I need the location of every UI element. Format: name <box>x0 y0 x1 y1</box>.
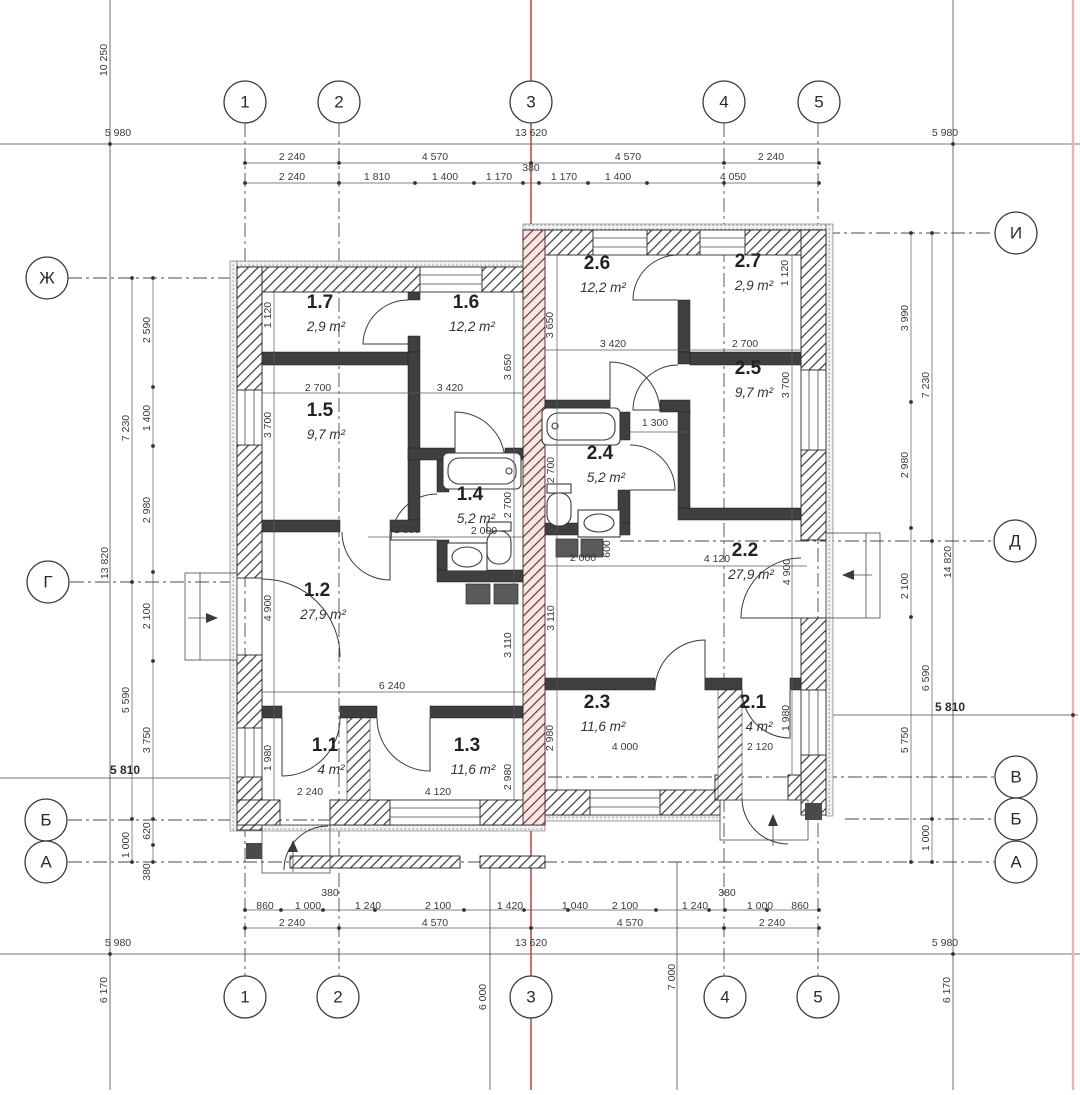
window-icon <box>390 800 480 825</box>
room-number: 1.5 <box>307 400 334 421</box>
dimension-label: 4 900 <box>781 559 793 585</box>
dimension-tick <box>472 181 476 185</box>
window-icon <box>237 728 262 777</box>
axis-bubble-label: 2 <box>334 92 343 111</box>
dimension-label: 2 100 <box>612 900 638 912</box>
dimension-label: 6 170 <box>98 977 110 1003</box>
dimension-tick <box>151 817 155 821</box>
room-number: 2.7 <box>735 251 761 272</box>
axis-bubble-label: Б <box>1010 809 1021 828</box>
dimension-label: 1 300 <box>394 524 420 536</box>
dimension-label: 1 000 <box>120 832 132 858</box>
dimension-tick <box>722 926 726 930</box>
dimension-tick <box>930 860 934 864</box>
dimension-label: 380 <box>522 162 540 174</box>
window-icon <box>801 370 826 450</box>
dimension-label: 5 980 <box>105 127 131 139</box>
sink-icon <box>447 543 487 571</box>
dimension-tick <box>930 231 934 235</box>
dimension-label: 3 650 <box>502 354 514 380</box>
room-number: 2.2 <box>732 540 758 561</box>
party-wall <box>523 230 545 825</box>
dimension-tick <box>817 908 821 912</box>
axis-bubble-label: Ж <box>39 268 55 287</box>
dimension-label: 2 980 <box>544 725 556 751</box>
dimension-label: 7 000 <box>666 964 678 990</box>
dimension-label: 6 240 <box>379 680 405 692</box>
axis-bubble: 2 <box>317 976 359 1018</box>
dimension-label: 5 980 <box>932 127 958 139</box>
axis-bubble: 5 <box>797 976 839 1018</box>
dimension-label: 2 240 <box>279 171 305 183</box>
room-area: 2,9 m² <box>306 319 346 334</box>
dimension-label: 3 420 <box>437 382 463 394</box>
dimension-tick <box>151 659 155 663</box>
dimension-tick <box>413 181 417 185</box>
axis-bubble-label: 1 <box>240 987 249 1006</box>
dimension-label: 7 230 <box>920 372 932 398</box>
dimension-tick <box>909 231 913 235</box>
room-area: 4 m² <box>746 719 774 734</box>
axis-bubble-label: А <box>1010 852 1022 871</box>
dimension-tick <box>723 908 727 912</box>
dimension-label: 1 400 <box>432 171 458 183</box>
dimension-label: 14 820 <box>942 546 954 578</box>
dimension-tick <box>130 860 134 864</box>
dimension-tick <box>951 142 955 146</box>
dimension-label: 5 810 <box>935 700 965 714</box>
dimension-label: 4 120 <box>704 553 730 565</box>
axis-bubble: 5 <box>798 81 840 123</box>
dimension-tick <box>909 400 913 404</box>
dimension-tick <box>909 615 913 619</box>
window-icon <box>237 390 262 445</box>
dimension-label: 4 900 <box>262 595 274 621</box>
dimension-label: 13 620 <box>515 127 547 139</box>
dimension-label: 1 120 <box>262 302 274 328</box>
dimension-label: 5 590 <box>120 687 132 713</box>
dimension-tick <box>151 276 155 280</box>
dimension-label: 3 110 <box>502 632 514 658</box>
dimension-tick <box>951 952 955 956</box>
dimension-label: 4 570 <box>422 151 448 163</box>
axis-bubble: Г <box>27 561 69 603</box>
room-area: 11,6 m² <box>451 762 496 777</box>
axis-bubble: 3 <box>510 81 552 123</box>
dimension-label: 2 000 <box>471 525 497 537</box>
dimension-label: 860 <box>256 900 274 912</box>
dimension-label: 3 750 <box>141 727 153 753</box>
dimension-tick <box>321 908 325 912</box>
room-number: 1.4 <box>457 484 484 505</box>
dimension-label: 2 120 <box>747 741 773 753</box>
axis-bubble: 3 <box>510 976 552 1018</box>
axis-bubble: И <box>995 212 1037 254</box>
dimension-tick <box>151 385 155 389</box>
axis-bubble-label: 2 <box>333 987 342 1006</box>
room-area: 5,2 m² <box>587 470 626 485</box>
dimension-label: 7 230 <box>120 415 132 441</box>
dimension-tick <box>151 570 155 574</box>
dimension-label: 5 810 <box>110 763 140 777</box>
dimension-tick <box>586 181 590 185</box>
toilet-icon <box>547 484 571 526</box>
axis-bubble-label: Г <box>43 572 52 591</box>
dimension-tick <box>337 161 341 165</box>
axis-bubble: Ж <box>26 257 68 299</box>
dimension-tick <box>537 181 541 185</box>
dimension-label: 13 820 <box>99 547 111 579</box>
room-number: 1.7 <box>307 292 333 313</box>
dimension-label: 2 980 <box>502 764 514 790</box>
dimension-label: 2 240 <box>279 917 305 929</box>
dimension-label: 1 980 <box>262 745 274 771</box>
dimension-label: 1 300 <box>642 417 668 429</box>
porch-pier <box>805 803 822 820</box>
dimension-label: 1 000 <box>747 900 773 912</box>
axis-bubble-label: Д <box>1009 531 1021 550</box>
dimension-label: 380 <box>718 887 736 899</box>
dimension-label: 4 570 <box>617 917 643 929</box>
dimension-label: 600 <box>601 540 613 558</box>
room-number: 1.1 <box>312 735 339 756</box>
dimension-label: 6 170 <box>941 977 953 1003</box>
dimension-label: 2 980 <box>141 497 153 523</box>
room-number: 1.3 <box>454 735 480 756</box>
dimension-tick <box>243 908 247 912</box>
dimension-tick <box>108 952 112 956</box>
axis-bubble: А <box>995 841 1037 883</box>
dimension-label: 2 240 <box>297 786 323 798</box>
dimension-label: 3 650 <box>544 312 556 338</box>
room-number: 2.6 <box>584 253 610 274</box>
dimension-label: 2 000 <box>570 552 596 564</box>
room-area: 4 m² <box>318 762 346 777</box>
room-number: 2.4 <box>587 443 614 464</box>
room-area: 27,9 m² <box>727 567 774 582</box>
dimension-label: 1 240 <box>682 900 708 912</box>
dimension-label: 2 700 <box>545 457 557 483</box>
room-area: 9,7 m² <box>735 385 774 400</box>
dimension-label: 10 250 <box>98 44 110 76</box>
dimension-label: 860 <box>791 900 809 912</box>
axis-bubble: 1 <box>224 976 266 1018</box>
room-number: 2.3 <box>584 692 610 713</box>
dimension-tick <box>645 181 649 185</box>
dimension-label: 1 000 <box>295 900 321 912</box>
entry-arrow-icon <box>842 570 872 580</box>
dimension-label: 1 040 <box>562 900 588 912</box>
axis-bubble-label: 4 <box>720 987 729 1006</box>
dimension-label: 2 700 <box>502 492 514 518</box>
dimension-label: 2 100 <box>141 603 153 629</box>
dimension-label: 2 700 <box>305 382 331 394</box>
dimension-label: 620 <box>141 822 153 840</box>
dimension-label: 1 120 <box>779 260 791 286</box>
dimension-label: 1 400 <box>605 171 631 183</box>
dimension-label: 3 700 <box>262 412 274 438</box>
dimension-label: 4 570 <box>422 917 448 929</box>
room-area: 2,9 m² <box>734 278 774 293</box>
dimension-tick <box>130 276 134 280</box>
window-icon <box>593 230 647 255</box>
room-number: 2.1 <box>740 692 767 713</box>
axis-bubble: 4 <box>703 81 745 123</box>
dimension-label: 3 700 <box>780 372 792 398</box>
dimension-tick <box>151 444 155 448</box>
dimension-label: 2 700 <box>732 338 758 350</box>
dimension-label: 1 420 <box>497 900 523 912</box>
dimension-tick <box>521 181 525 185</box>
window-icon <box>590 790 660 815</box>
axis-bubble: Б <box>25 799 67 841</box>
dimension-tick <box>243 926 247 930</box>
floor-plan-svg: 1234512345ЖГБАИДВБА 10 2505 98013 6205 9… <box>0 0 1080 1090</box>
dimension-label: 2 100 <box>425 900 451 912</box>
axis-bubble-label: И <box>1010 223 1022 242</box>
dimension-label: 1 810 <box>364 171 390 183</box>
dimension-label: 2 240 <box>279 151 305 163</box>
dimension-label: 1 000 <box>920 825 932 851</box>
dimension-tick <box>243 161 247 165</box>
dimension-label: 13 620 <box>515 937 547 949</box>
dimension-label: 6 590 <box>920 665 932 691</box>
room-number: 1.6 <box>453 292 479 313</box>
dimension-label: 1 400 <box>141 405 153 431</box>
axis-bubble-label: А <box>40 852 52 871</box>
porch-pier <box>246 843 262 859</box>
dimension-label: 1 170 <box>551 171 577 183</box>
room-area: 9,7 m² <box>307 427 346 442</box>
dimension-label: 1 240 <box>355 900 381 912</box>
axis-bubble-label: 5 <box>813 987 822 1006</box>
dimension-label: 5 980 <box>932 937 958 949</box>
dimension-tick <box>130 817 134 821</box>
room-area: 5,2 m² <box>457 511 496 526</box>
dimension-tick <box>462 908 466 912</box>
dimension-label: 2 240 <box>759 917 785 929</box>
axis-bubble: 4 <box>704 976 746 1018</box>
room-area: 12,2 m² <box>580 280 626 295</box>
dimension-label: 4 000 <box>612 741 638 753</box>
floor-plan-sheet: 1234512345ЖГБАИДВБА 10 2505 98013 6205 9… <box>0 0 1080 1090</box>
dimension-label: 4 570 <box>615 151 641 163</box>
dimension-tick <box>930 817 934 821</box>
dimension-label: 2 100 <box>899 573 911 599</box>
bathtub-icon <box>542 408 620 445</box>
entry-arrow-icon <box>188 613 218 623</box>
room-area: 27,9 m² <box>299 607 346 622</box>
axis-bubble-label: 5 <box>814 92 823 111</box>
room-area: 11,6 m² <box>581 719 626 734</box>
room-number: 2.5 <box>735 358 762 379</box>
dimension-label: 3 420 <box>600 338 626 350</box>
axis-bubble: 1 <box>224 81 266 123</box>
axis-bubble-label: 3 <box>526 987 535 1006</box>
dimension-label: 3 110 <box>545 605 557 631</box>
axis-bubble-label: В <box>1010 767 1021 786</box>
dimension-tick <box>817 181 821 185</box>
window-icon <box>801 690 826 755</box>
dimension-label: 380 <box>321 887 339 899</box>
dimension-tick <box>930 539 934 543</box>
dimension-tick <box>1071 713 1075 717</box>
axis-bubble: Б <box>995 798 1037 840</box>
dimension-label: 2 980 <box>899 452 911 478</box>
axis-bubble-label: 1 <box>240 92 249 111</box>
dimension-tick <box>909 526 913 530</box>
dimension-label: 2 590 <box>141 317 153 343</box>
dimension-label: 4 120 <box>425 786 451 798</box>
dimension-tick <box>529 926 533 930</box>
axis-bubble: Д <box>994 520 1036 562</box>
dimension-tick <box>108 142 112 146</box>
room-number: 1.2 <box>304 580 330 601</box>
axis-bubble-label: 4 <box>719 92 728 111</box>
dimension-tick <box>817 161 821 165</box>
window-icon <box>420 267 482 292</box>
axis-bubble: 2 <box>318 81 360 123</box>
dimension-tick <box>130 580 134 584</box>
dimension-tick <box>909 860 913 864</box>
dimension-label: 5 750 <box>899 727 911 753</box>
dimension-tick <box>817 926 821 930</box>
dimension-tick <box>243 181 247 185</box>
room-area: 12,2 m² <box>449 319 495 334</box>
dimension-label: 4 050 <box>720 171 746 183</box>
dimension-label: 5 980 <box>105 937 131 949</box>
dimension-tick <box>279 908 283 912</box>
axis-bubble: В <box>995 756 1037 798</box>
dimension-tick <box>337 181 341 185</box>
dimension-tick <box>654 908 658 912</box>
dimension-label: 3 990 <box>899 305 911 331</box>
axis-bubble-label: 3 <box>526 92 535 111</box>
dimension-label: 1 980 <box>780 705 792 731</box>
dimension-label: 2 240 <box>758 151 784 163</box>
axis-bubble-label: Б <box>40 810 51 829</box>
axis-bubble: А <box>25 841 67 883</box>
sink-icon <box>578 510 620 537</box>
dimension-tick <box>337 926 341 930</box>
dimension-label: 1 170 <box>486 171 512 183</box>
dimension-tick <box>151 843 155 847</box>
entry-arrow-icon <box>768 814 778 846</box>
dimension-tick <box>722 161 726 165</box>
dimension-label: 6 000 <box>477 984 489 1010</box>
dimension-label: 380 <box>141 863 153 881</box>
